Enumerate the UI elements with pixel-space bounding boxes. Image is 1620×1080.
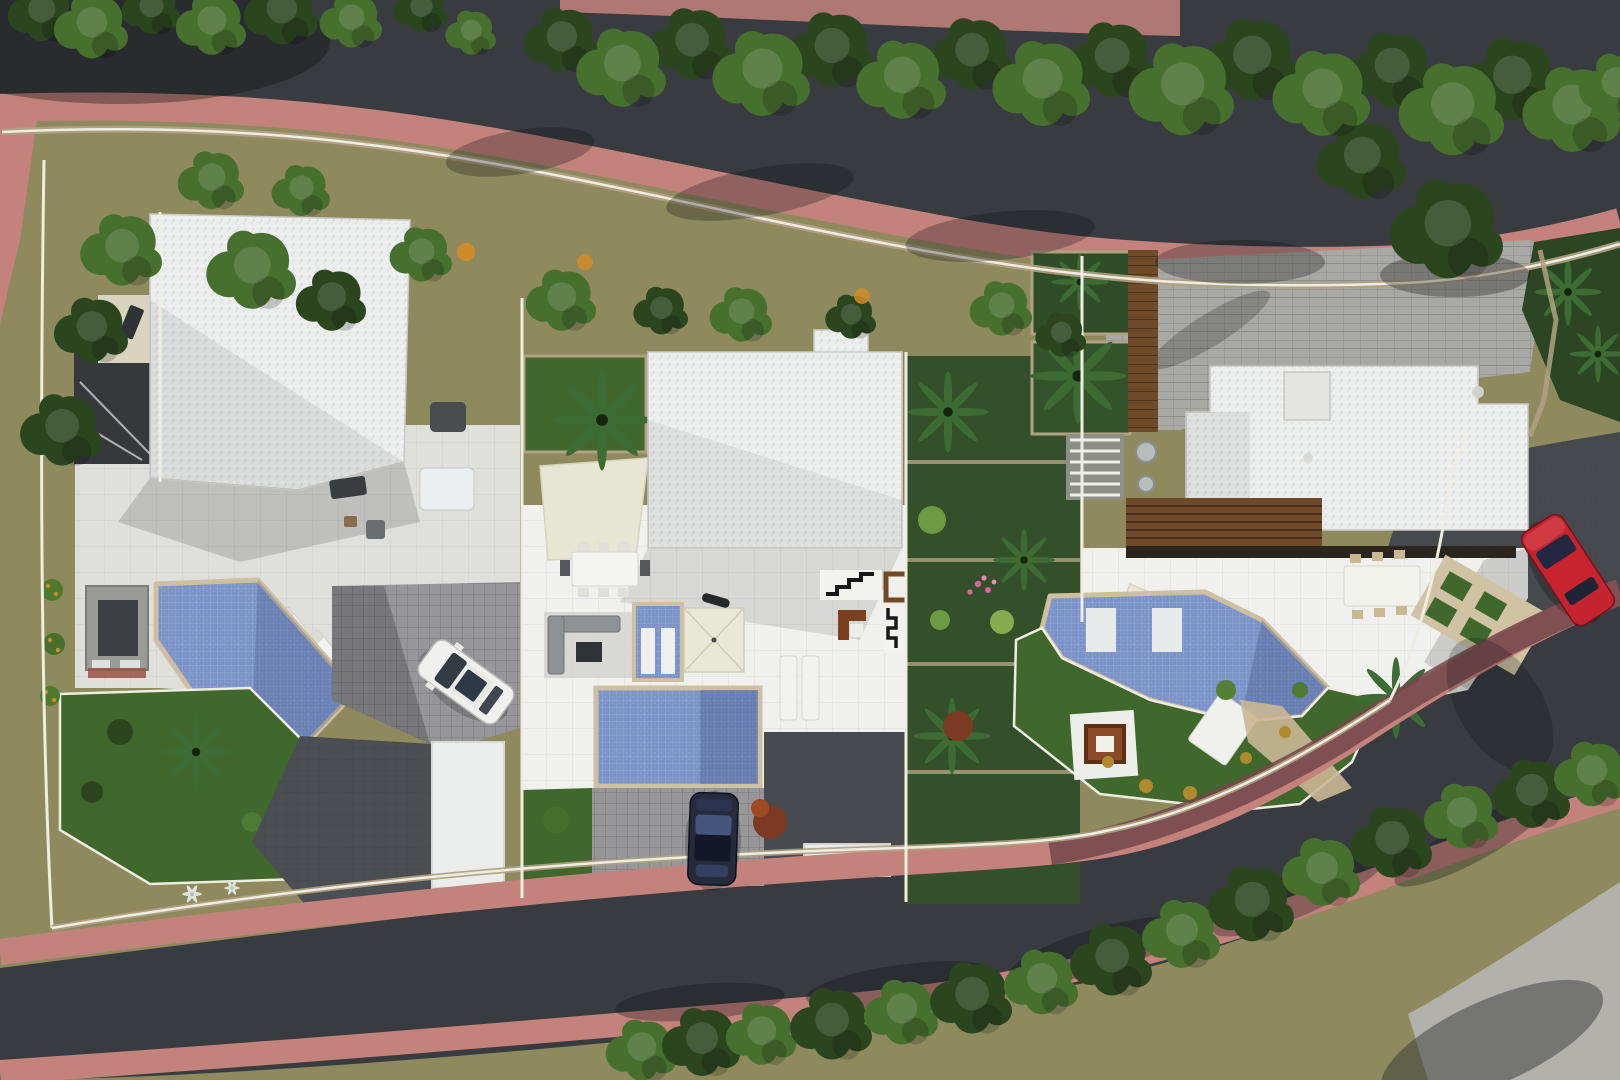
site-plan-render (0, 0, 1620, 1080)
terrace-armchair (366, 520, 385, 539)
pergola-beam (1126, 546, 1516, 558)
villa-right-dining-table (1344, 566, 1420, 606)
driveway-shrub (543, 807, 569, 833)
lounge-sofa-b (548, 616, 564, 674)
kitchen-pad-2 (120, 660, 140, 668)
firepit-inner (1096, 736, 1114, 752)
corner-sofa-white (420, 468, 474, 510)
roof-vent-a (1303, 453, 1313, 463)
spa-bed-a (641, 628, 655, 674)
parasol-pole (712, 638, 717, 643)
red-shrub-top (751, 799, 769, 817)
lawn-bush-b (1292, 682, 1308, 698)
terrace-coffee-table (344, 516, 357, 527)
lounge-table (576, 642, 602, 662)
shade-sail (540, 458, 648, 560)
entry-stairs-base (1066, 434, 1124, 500)
counter-cube (850, 624, 863, 637)
roof-vent-b (1472, 386, 1484, 398)
kitchen-pad (92, 660, 110, 668)
villa-right-skylight (1284, 372, 1330, 420)
villa-middle-plot (522, 330, 1080, 904)
bistro-table-b (1138, 476, 1154, 492)
counter-brown-b (838, 610, 849, 640)
in-pool-sunbed-b (1152, 608, 1182, 652)
villa-left-garage-roof (432, 742, 504, 888)
dining-table (572, 552, 638, 586)
spa-bed-b (661, 628, 675, 674)
armchair-dark (430, 402, 466, 432)
in-pool-sunbed-a (1086, 608, 1116, 652)
kitchen-mat (88, 668, 146, 678)
lawn-bush-a (1216, 680, 1236, 700)
bistro-table-a (1136, 442, 1156, 462)
kitchen-grill (98, 600, 138, 656)
dark-car (683, 790, 742, 892)
garden-palm-large (552, 370, 653, 471)
villa-middle-pool-deep (700, 690, 758, 784)
